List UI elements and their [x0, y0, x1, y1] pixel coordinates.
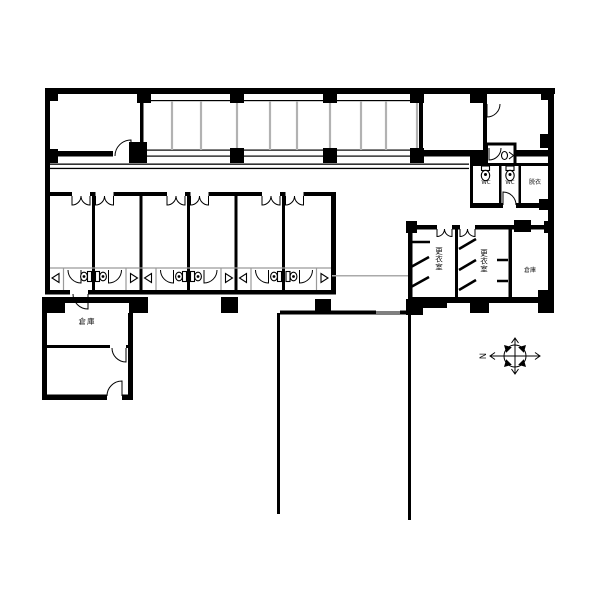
double-door-arc: [72, 196, 90, 205]
toilet-icon: [271, 272, 282, 282]
partition-lines: [172, 101, 417, 150]
door-arc: [161, 270, 174, 283]
double-door-arc: [460, 229, 475, 237]
sink-icon: [131, 274, 138, 283]
double-door-arc: [286, 196, 304, 205]
sink-icon: [145, 274, 152, 283]
door-arc: [300, 270, 313, 283]
label-wc-2: WC: [500, 180, 520, 186]
compass-rose: [490, 338, 540, 374]
double-door-arc: [262, 196, 280, 205]
double-door-arc: [167, 196, 185, 205]
door-arc: [487, 104, 500, 117]
sink-icon: [321, 274, 328, 283]
door-arc: [107, 381, 122, 396]
toilet-icon: [176, 272, 187, 282]
toilet-icon: [191, 272, 202, 282]
toilet-icon: [286, 272, 297, 282]
toilet-icon: [96, 272, 107, 282]
floor-plan-page: 倉庫 倉庫 更衣室 更衣室 WC WC 脱衣 N: [0, 0, 600, 600]
double-door-arc: [96, 196, 114, 205]
door-arc: [115, 140, 131, 156]
door-arc: [256, 270, 269, 283]
label-wc-1: WC: [476, 180, 496, 186]
double-door-arc: [437, 229, 452, 237]
label-changing-room-2: 更衣室: [480, 249, 488, 273]
washbasin-icon: [502, 152, 514, 160]
compass-north-label: N: [477, 349, 491, 363]
door-arc: [68, 270, 81, 283]
label-changing-room-1: 更衣室: [435, 247, 443, 271]
changing-room-hooks: [411, 239, 508, 290]
sink-icon: [240, 274, 247, 283]
door-arc: [489, 148, 501, 160]
toilet-icon: [81, 272, 92, 282]
double-door-arc: [191, 196, 209, 205]
sink-icon: [52, 274, 59, 283]
lower-area-walls: [277, 275, 411, 520]
label-undressing-room: 脱衣: [522, 177, 548, 186]
label-storage-left: 倉庫: [64, 316, 110, 327]
toilet-icon: [481, 166, 489, 181]
floor-plan-svg: [0, 0, 600, 600]
toilet-icon: [506, 166, 514, 181]
door-arc: [204, 270, 217, 283]
door-arc: [112, 348, 126, 362]
sink-icon: [226, 274, 233, 283]
label-storage-right: 倉庫: [517, 265, 543, 274]
door-arc: [503, 192, 516, 205]
door-arc: [109, 270, 122, 283]
